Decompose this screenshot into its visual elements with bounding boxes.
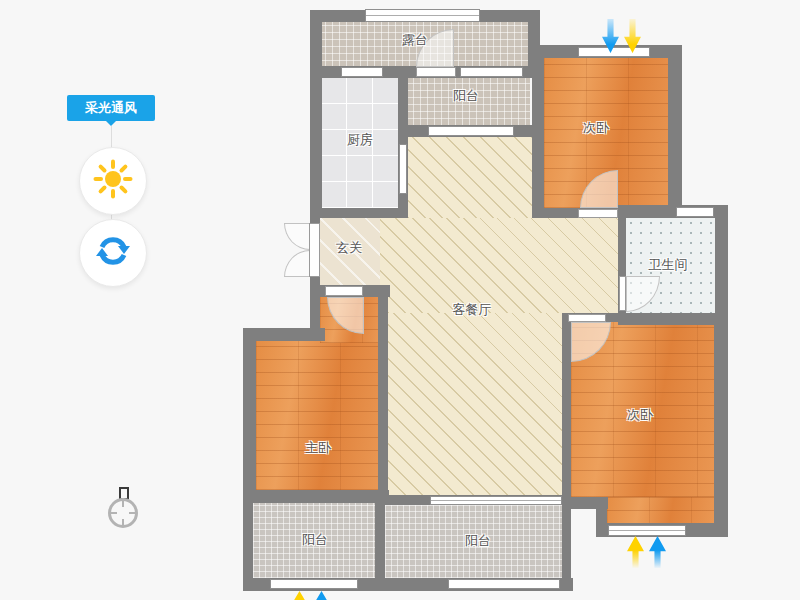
room-label-balcony-top: 阳台 [453,87,479,105]
room-label-bedroom-bottom: 次卧 [627,406,653,424]
sliding-door [428,126,514,136]
window [578,47,650,57]
entry-door [309,223,320,277]
door [619,276,626,311]
sun-icon [93,159,133,203]
floorplan-viewer: 采光通风 [0,0,800,600]
window [270,579,358,589]
wall [668,45,682,218]
window [448,579,560,589]
arrow-up-icon [649,536,666,568]
wall [562,497,571,590]
door [578,209,618,218]
door [325,286,363,296]
room-label-foyer: 玄关 [336,239,362,257]
sliding-door [430,496,562,505]
compass-tick [122,500,124,507]
sliding-door [399,144,407,194]
window [365,9,480,22]
wall [310,10,322,218]
arrow-up-icon [313,591,330,600]
compass-tick [110,512,117,514]
wall [243,503,253,590]
window [460,67,523,77]
mode-badge[interactable]: 采光通风 [67,95,155,121]
room-label-bathroom: 卫生间 [649,256,688,274]
room-label-kitchen: 厨房 [347,131,373,149]
wall [243,490,389,503]
wall [378,285,388,497]
wall [715,205,728,325]
room-label-terrace: 露台 [402,31,428,49]
wall [243,328,325,341]
room-label-balcony-left: 阳台 [302,531,328,549]
door [416,67,456,77]
room-label-living-dining: 客餐厅 [453,301,492,319]
wall [375,495,385,590]
door-swing [284,223,310,250]
room-label-bedroom-top: 次卧 [583,119,609,137]
room-label-master-bedroom: 主卧 [305,439,331,457]
window [341,67,383,77]
wall [398,66,408,218]
compass-tick [129,512,136,514]
room-label-balcony-middle: 阳台 [465,532,491,550]
room-bedroom-bottom[interactable] [607,497,714,524]
room-master-bedroom[interactable] [256,341,378,490]
wall [562,313,571,497]
compass-tick [122,519,124,526]
wall [714,313,728,537]
window [608,525,686,536]
room-living-upper[interactable] [408,128,532,218]
wall [243,328,256,503]
arrow-up-icon [627,536,644,568]
arrow-up-icon [291,591,308,600]
door-swing [284,250,310,277]
rotate-button[interactable] [79,219,147,287]
window [676,207,714,217]
wall [310,208,408,218]
door [568,314,606,322]
mode-badge-pointer [106,121,116,131]
room-living-lower[interactable] [388,313,562,495]
rotate-icon [95,233,131,273]
sunlight-button[interactable] [79,147,147,215]
